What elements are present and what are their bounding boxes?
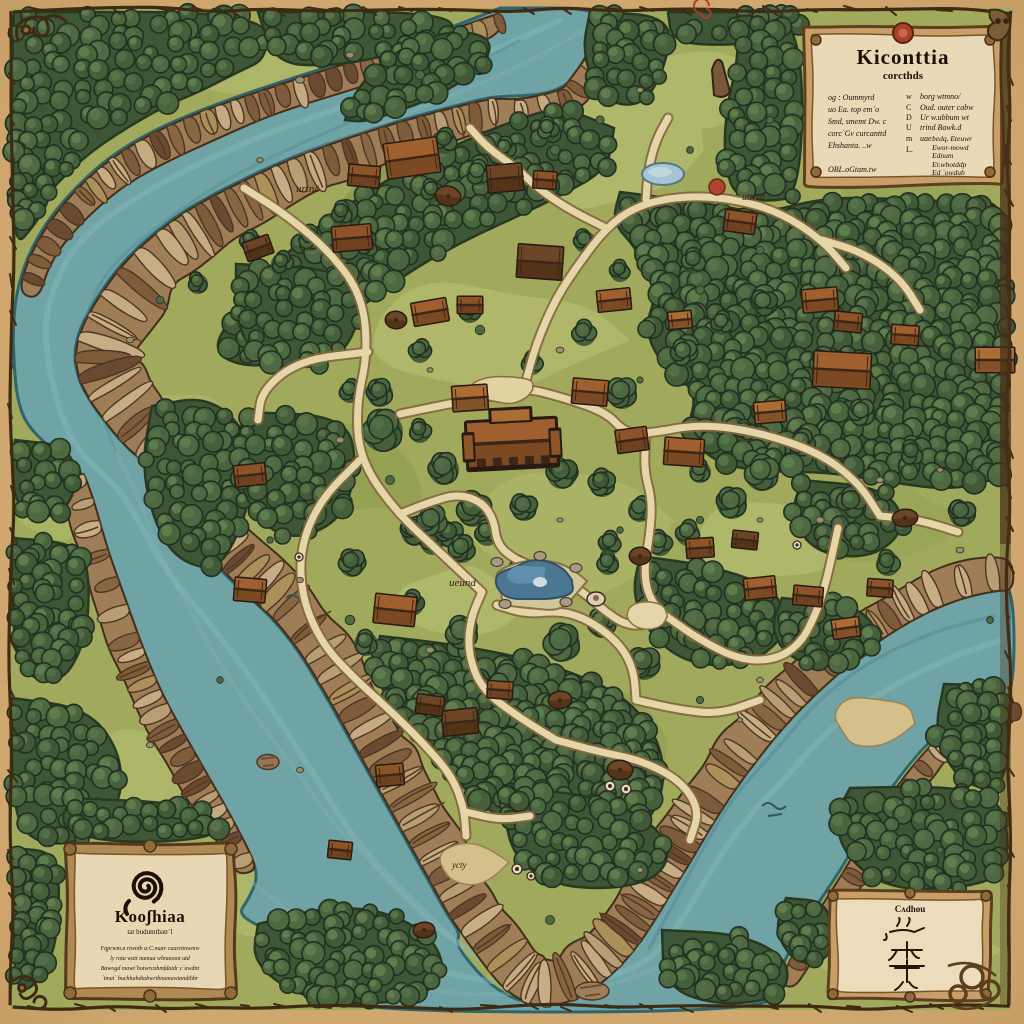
svg-text:D: D bbox=[906, 113, 912, 122]
svg-text:L.: L. bbox=[906, 145, 913, 154]
svg-text:Ednum: Ednum bbox=[931, 151, 954, 160]
svg-text:ly rota watt namua wbnaooot at: ly rota watt namua wbnaooot atd bbox=[110, 956, 191, 962]
svg-text:Oud. outer cabw: Oud. outer cabw bbox=[920, 103, 974, 112]
svg-text:Ed `owdub: Ed `owdub bbox=[931, 168, 965, 177]
svg-text:U: U bbox=[906, 123, 912, 132]
svg-text:m: m bbox=[906, 134, 913, 143]
svg-text:Ur w.ubbum wt: Ur w.ubbum wt bbox=[920, 113, 970, 122]
svg-text:Kiconttia: Kiconttia bbox=[857, 45, 950, 69]
svg-text:corc`Gv curcanttd: corc`Gv curcanttd bbox=[828, 129, 887, 138]
svg-text:og : Oummyrd: og : Oummyrd bbox=[828, 93, 875, 102]
svg-text:C: C bbox=[906, 103, 911, 112]
svg-text:`tmat` buchhabdtabwrtbnumawtan: `tmat` buchhabdtabwrtbnumawtandthbr bbox=[102, 976, 199, 982]
svg-text:Kooʃhiaa: Kooʃhiaa bbox=[115, 907, 186, 926]
svg-text:bedq, Eteuwr: bedq, Eteuwr bbox=[932, 134, 972, 143]
svg-text:OBL.oGtam.tw: OBL.oGtam.tw bbox=[828, 165, 877, 174]
svg-text:w: w bbox=[906, 92, 912, 101]
svg-text:Fqprwm.a rtwntb a:C.nuav cuurc: Fqprwm.a rtwntb a:C.nuav cuurctmwmw bbox=[100, 946, 200, 952]
svg-text:Smd, smemt Dw. c: Smd, smemt Dw. c bbox=[828, 117, 887, 126]
svg-text:uo Ea. top em`o: uo Ea. top em`o bbox=[828, 105, 879, 114]
svg-text:Ehshanta. ..w: Ehshanta. ..w bbox=[827, 141, 872, 150]
svg-text:Cʌdhou: Cʌdhou bbox=[895, 904, 926, 914]
svg-text:trind Bawk.d: trind Bawk.d bbox=[920, 123, 962, 132]
svg-text:corcthds: corcthds bbox=[883, 70, 924, 82]
svg-text:tat budutntbatr`l: tat budutntbatr`l bbox=[127, 928, 172, 936]
svg-text:uae: uae bbox=[920, 134, 932, 143]
svg-text:Bawogd mawt`botwrcahmfdatdr c`: Bawogd mawt`botwrcahmfdatdr c`awdnt bbox=[101, 965, 200, 972]
svg-text:borg wtmno/: borg wtmno/ bbox=[920, 92, 961, 101]
